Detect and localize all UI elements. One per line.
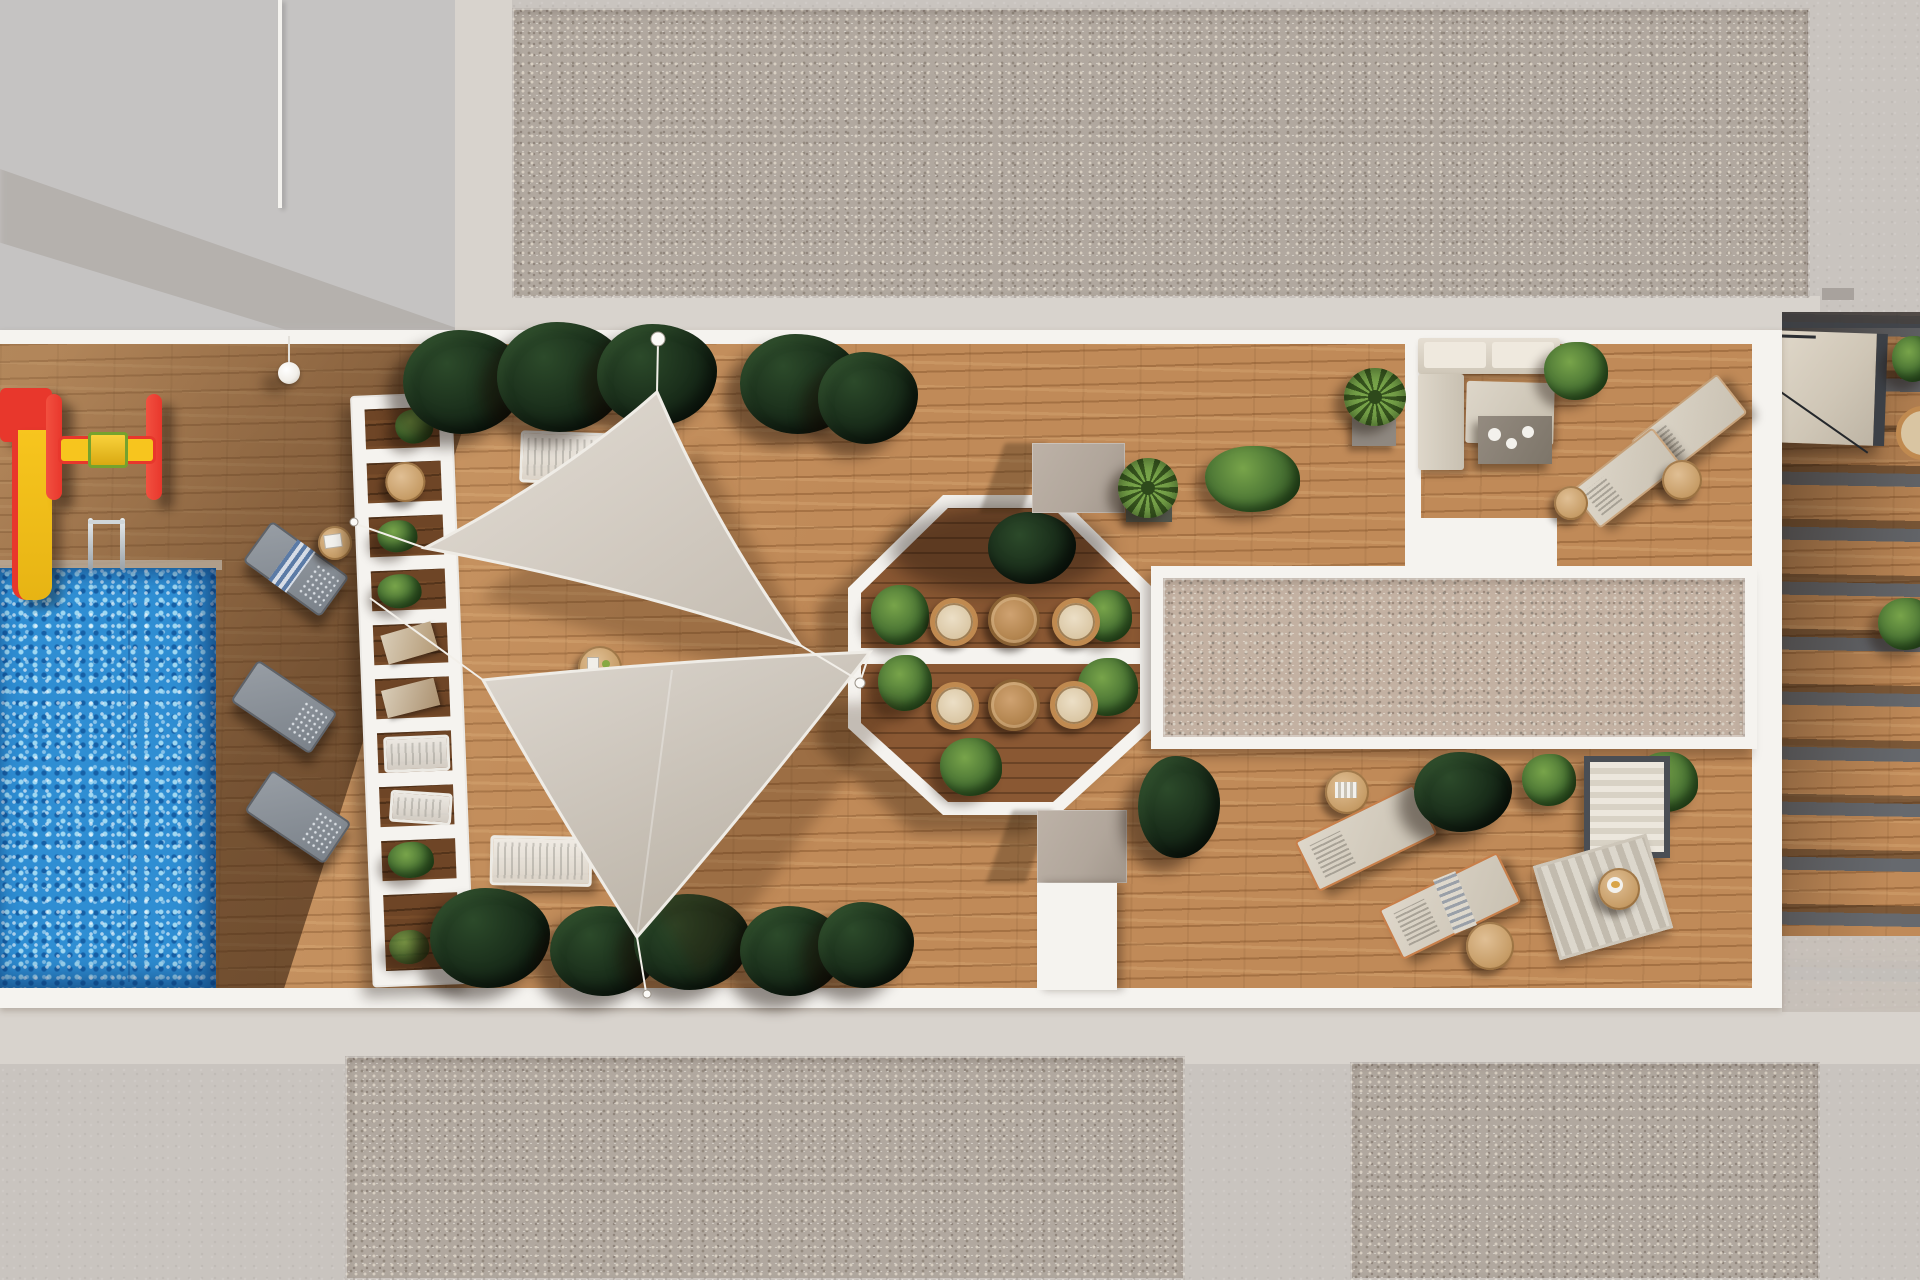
gravel-roof-top [512, 8, 1810, 298]
stair-landing-concrete [1782, 936, 1920, 1012]
concrete-margin-left-of-gravel [455, 0, 512, 300]
stair-top-rail [1782, 312, 1920, 328]
parapet-edge-line [278, 0, 282, 208]
main-deck [0, 330, 1782, 1008]
gravel-roof-bottom-right [1350, 1062, 1820, 1280]
rooftop-render [0, 0, 1920, 1280]
concrete-step-top-right [1822, 288, 1854, 300]
gravel-roof-bottom-left [345, 1056, 1185, 1280]
shade-sails [0, 330, 1782, 1008]
